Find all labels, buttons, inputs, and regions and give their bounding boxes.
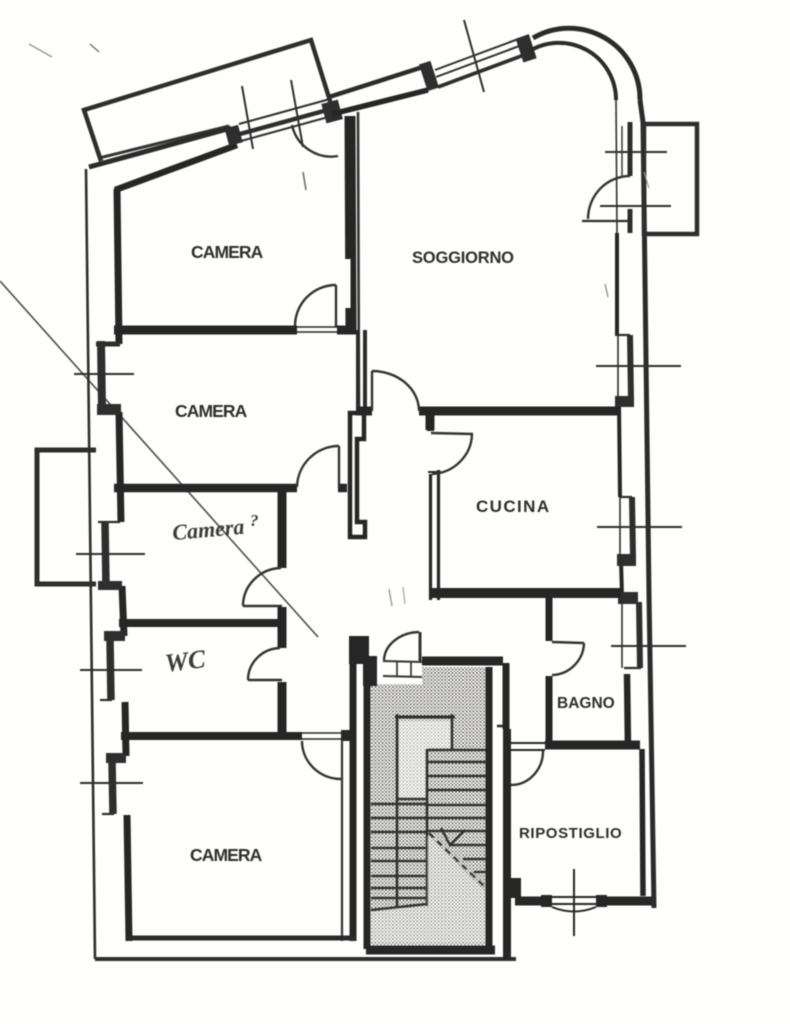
- svg-text:BAGNO: BAGNO: [557, 695, 615, 712]
- svg-text:CAMERA: CAMERA: [175, 401, 248, 421]
- svg-text:Camera: Camera: [171, 514, 245, 545]
- svg-text:RIPOSTIGLIO: RIPOSTIGLIO: [519, 825, 622, 842]
- svg-text:WC: WC: [163, 644, 207, 678]
- svg-text:?: ?: [250, 511, 259, 530]
- svg-text:CAMERA: CAMERA: [190, 845, 263, 865]
- svg-text:CUCINA: CUCINA: [476, 497, 551, 516]
- svg-text:SOGGIORNO: SOGGIORNO: [412, 249, 514, 267]
- svg-text:CAMERA: CAMERA: [191, 242, 264, 262]
